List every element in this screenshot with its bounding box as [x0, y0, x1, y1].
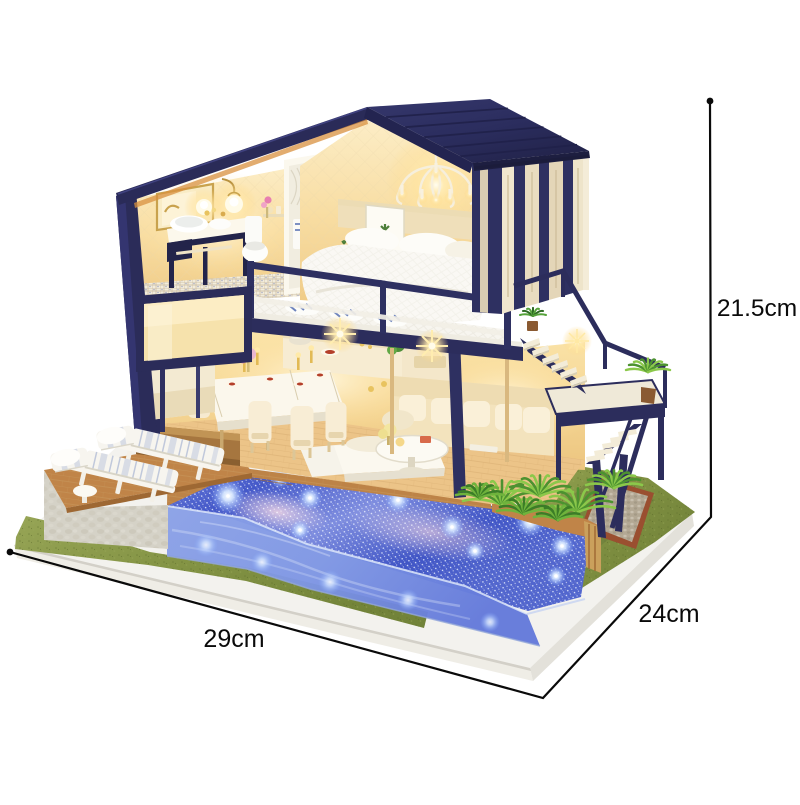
svg-text:21.5cm: 21.5cm — [717, 295, 797, 322]
svg-text:29cm: 29cm — [203, 625, 264, 653]
svg-text:24cm: 24cm — [638, 600, 699, 628]
